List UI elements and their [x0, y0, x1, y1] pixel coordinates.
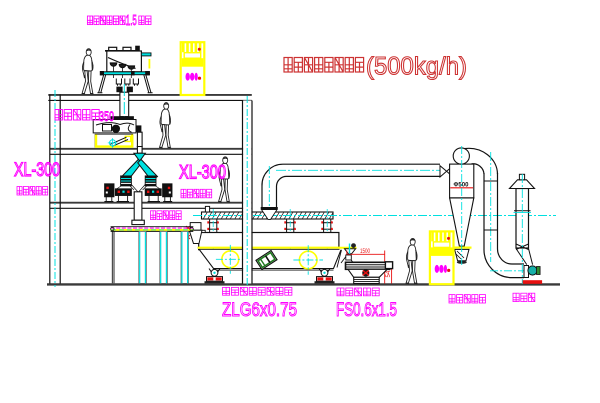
svg-text:FS0.6x1.5: FS0.6x1.5 [336, 300, 397, 321]
svg-text:1500: 1500 [360, 249, 370, 255]
svg-text:XL-300: XL-300 [14, 160, 60, 181]
svg-text:(500kg/h): (500kg/h) [366, 53, 467, 81]
svg-text:350: 350 [99, 108, 114, 124]
svg-text:1.5: 1.5 [126, 13, 137, 29]
svg-text:ZLG6x0.75: ZLG6x0.75 [222, 300, 297, 321]
svg-text:XL-300: XL-300 [179, 163, 226, 184]
